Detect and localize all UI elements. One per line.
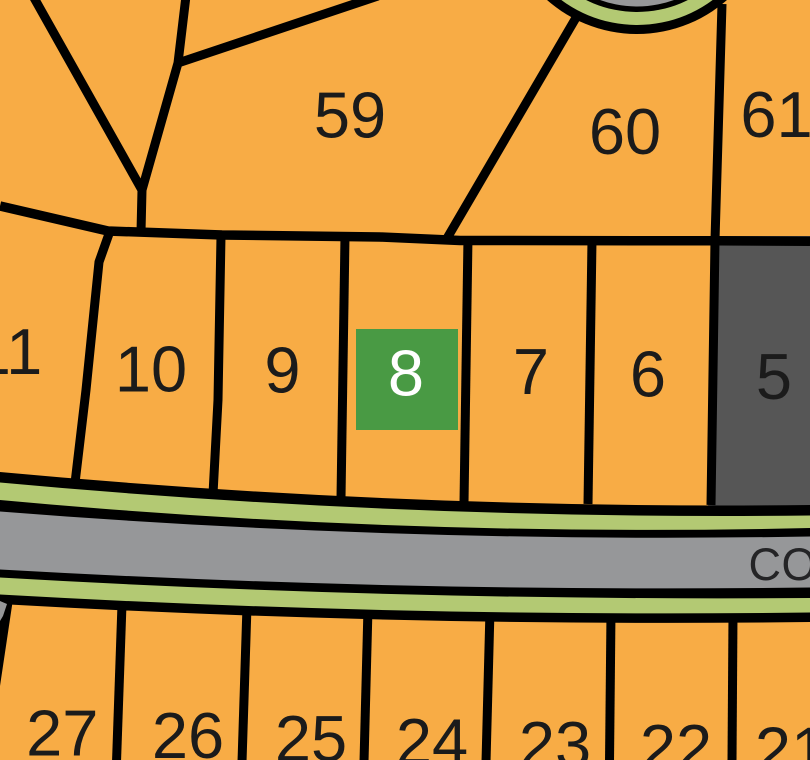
svg-text:27: 27 <box>26 697 98 760</box>
svg-text:8: 8 <box>388 337 424 410</box>
svg-text:60: 60 <box>589 95 661 168</box>
svg-text:9: 9 <box>264 334 300 407</box>
svg-text:59: 59 <box>314 79 386 152</box>
svg-text:24: 24 <box>396 705 468 760</box>
svg-text:7: 7 <box>513 335 549 408</box>
svg-text:26: 26 <box>152 699 224 760</box>
svg-text:5: 5 <box>756 340 792 413</box>
svg-text:25: 25 <box>275 702 347 760</box>
svg-text:22: 22 <box>640 711 712 760</box>
svg-text:61: 61 <box>740 78 810 151</box>
svg-text:23: 23 <box>519 708 591 760</box>
svg-text:10: 10 <box>115 333 187 406</box>
svg-text:11: 11 <box>0 315 42 388</box>
svg-text:6: 6 <box>630 338 666 411</box>
svg-text:COU: COU <box>749 539 810 590</box>
svg-text:21: 21 <box>755 714 810 760</box>
